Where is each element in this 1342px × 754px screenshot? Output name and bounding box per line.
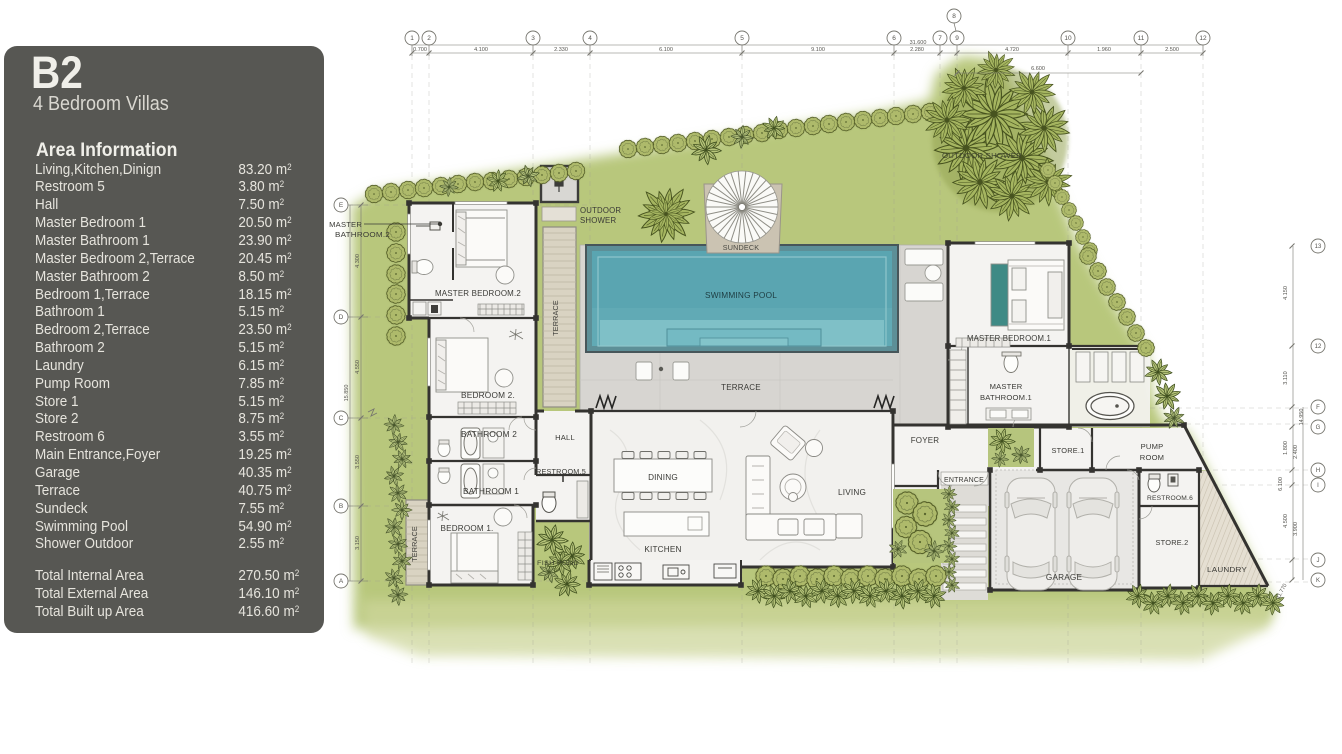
svg-text:8: 8 [952,13,956,20]
svg-text:SWIMMING POOL: SWIMMING POOL [705,290,777,300]
svg-text:STORE.2: STORE.2 [1156,538,1189,547]
svg-text:J: J [1317,558,1320,564]
svg-text:4.150: 4.150 [1283,286,1289,300]
svg-text:PUMP: PUMP [1141,442,1164,451]
svg-text:FOYER: FOYER [911,436,940,445]
svg-text:E: E [339,202,344,209]
svg-text:MASTER: MASTER [329,220,362,229]
svg-text:14.950: 14.950 [1299,409,1305,426]
svg-text:H: H [1316,468,1320,474]
svg-text:6.600: 6.600 [1031,66,1045,72]
svg-text:1.960: 1.960 [1097,47,1111,53]
svg-text:3.550: 3.550 [355,455,361,469]
svg-text:C: C [339,415,344,422]
svg-text:12: 12 [1199,35,1207,42]
svg-text:3: 3 [531,35,535,42]
svg-text:MASTER: MASTER [990,382,1023,391]
svg-text:4.500: 4.500 [1283,514,1289,528]
svg-text:MASTER BEDROOM.2: MASTER BEDROOM.2 [435,289,521,298]
svg-text:15.850: 15.850 [344,385,350,402]
svg-text:D: D [339,314,344,321]
svg-text:OUTDOOR: OUTDOOR [580,206,621,215]
svg-text:4.300: 4.300 [355,254,361,268]
svg-text:2.330: 2.330 [554,47,568,53]
svg-text:A: A [339,578,344,585]
svg-text:4: 4 [588,35,592,42]
svg-text:0.700: 0.700 [413,47,427,53]
svg-text:F: F [1316,405,1320,411]
svg-text:1.800: 1.800 [1283,441,1289,455]
svg-text:9: 9 [955,35,959,42]
svg-text:4.550: 4.550 [355,360,361,374]
svg-text:2: 2 [427,35,431,42]
svg-text:6.100: 6.100 [659,47,673,53]
svg-text:MASTER BEDROOM.1: MASTER BEDROOM.1 [967,334,1051,343]
svg-text:4.100: 4.100 [474,47,488,53]
svg-text:3.150: 3.150 [355,536,361,550]
svg-text:K: K [1316,578,1320,584]
svg-text:ROOM: ROOM [1140,453,1164,462]
svg-text:TERRACE: TERRACE [410,526,419,562]
svg-text:BEDROOM 1.: BEDROOM 1. [441,524,494,533]
svg-text:B: B [339,503,343,510]
svg-text:FISH POND: FISH POND [537,560,579,567]
svg-text:GARAGE: GARAGE [1046,573,1083,582]
svg-text:BATHROOM.1: BATHROOM.1 [980,393,1032,402]
svg-text:ENTRANCE: ENTRANCE [944,475,984,484]
svg-text:4.720: 4.720 [1005,47,1019,53]
svg-text:6.100: 6.100 [1278,477,1284,491]
svg-text:TERRACE: TERRACE [551,300,560,336]
svg-text:11: 11 [1138,35,1145,42]
svg-text:BATHROOM.2: BATHROOM.2 [335,230,390,239]
svg-text:BEDROOM 2.: BEDROOM 2. [461,391,515,400]
svg-text:7: 7 [938,35,942,42]
svg-text:13: 13 [1315,244,1322,250]
svg-text:SUNDECK: SUNDECK [723,243,760,252]
svg-text:LAUNDRY: LAUNDRY [1207,565,1247,574]
svg-text:5: 5 [740,35,744,42]
svg-text:BATHROOM 2: BATHROOM 2 [461,430,517,439]
svg-text:10: 10 [1064,35,1072,42]
svg-text:31.600: 31.600 [910,40,927,46]
svg-text:KITCHEN: KITCHEN [644,545,681,554]
svg-text:OUTDOOR SHOWER: OUTDOOR SHOWER [942,153,1022,160]
svg-text:DINING: DINING [648,473,678,482]
svg-text:TERRACE: TERRACE [721,383,761,392]
svg-text:G: G [1316,425,1321,431]
svg-text:2.280: 2.280 [910,47,924,53]
svg-text:RESTROOM.6: RESTROOM.6 [1147,495,1193,502]
svg-text:2.400: 2.400 [1293,445,1299,459]
svg-text:LIVING: LIVING [838,488,866,497]
svg-text:RESTROOM.5: RESTROOM.5 [536,467,586,476]
svg-text:9.100: 9.100 [811,47,825,53]
svg-text:2.500: 2.500 [1165,47,1179,53]
svg-text:SHOWER: SHOWER [580,216,616,225]
svg-text:3.900: 3.900 [1293,522,1299,536]
svg-text:STORE.1: STORE.1 [1052,446,1085,455]
svg-text:1: 1 [410,35,414,42]
svg-text:HALL: HALL [555,433,575,442]
svg-text:BATHROOM 1: BATHROOM 1 [463,487,519,496]
svg-text:12: 12 [1315,344,1322,350]
svg-text:6: 6 [892,35,896,42]
svg-text:3.110: 3.110 [1283,371,1289,384]
